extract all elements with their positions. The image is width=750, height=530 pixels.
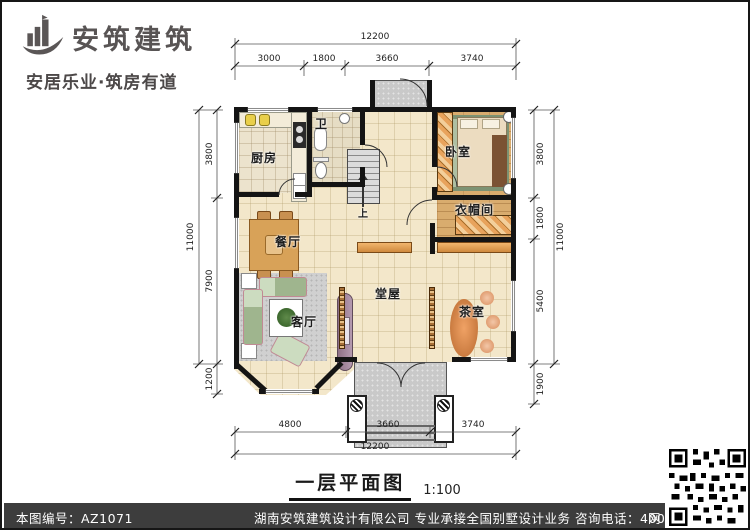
room-label-bath: 卫 [315, 115, 328, 132]
porch-step [367, 432, 435, 434]
sink-bowl [259, 114, 270, 126]
plan-title: 一层平面图 [289, 468, 411, 501]
brand-name: 安筑建筑 [72, 18, 196, 57]
stair-up-label: 上 [358, 205, 369, 220]
wall [360, 167, 365, 187]
room-label-kitchen: 厨房 [251, 149, 277, 166]
dim-label: 3740 [450, 54, 494, 64]
drawing-sheet: 安筑建筑 安居乐业·筑房有道 安筑建筑 安筑建筑 安筑建筑 [0, 0, 750, 530]
sofa [243, 289, 263, 345]
dim-label: 1800 [302, 54, 346, 64]
window [247, 107, 289, 112]
hall-cabinet [437, 242, 512, 253]
bay-window [265, 389, 313, 394]
dim-label: 4800 [268, 420, 312, 430]
cloak-wardrobe [455, 215, 512, 235]
screen-partition [339, 287, 345, 349]
dim-label: 1200 [205, 357, 215, 401]
burner-icon [296, 136, 303, 143]
sink-bowl [245, 114, 256, 126]
room-label-dining: 餐厅 [275, 233, 301, 250]
window [470, 357, 508, 362]
fridge-divider [293, 185, 306, 186]
web-label: 网 [648, 508, 661, 527]
room-label-cloakroom: 衣帽间 [455, 201, 494, 218]
wall [432, 237, 516, 242]
dim-label: 12200 [353, 32, 397, 42]
drawing-number: 本图编号：AZ1071 [16, 508, 133, 527]
toilet-icon [315, 162, 327, 179]
side-table [241, 273, 257, 289]
window [234, 122, 239, 174]
room-label-tea: 茶室 [459, 303, 485, 320]
screen-partition [429, 287, 435, 349]
footer-bar: 本图编号：AZ1071 湖南安筑建筑设计有限公司 专业承接全国别墅设计业务 咨询… [4, 503, 746, 528]
dim-label: 3000 [247, 54, 291, 64]
round-sink-icon [339, 113, 350, 124]
dim-label: 1800 [536, 196, 546, 240]
column-icon [350, 399, 363, 412]
burner-icon [296, 126, 303, 133]
room-label-hall: 堂屋 [375, 285, 401, 302]
dim-label: 7900 [205, 259, 215, 303]
dim-label: 5400 [536, 279, 546, 323]
room-label-bedroom: 卧室 [445, 143, 471, 160]
company-info: 湖南安筑建筑设计有限公司 专业承接全国别墅设计业务 咨询电话：400-8070-… [254, 508, 735, 527]
pillow [460, 119, 478, 129]
rear-porch-wall [370, 80, 375, 107]
dim-label: 1900 [536, 362, 546, 406]
bed-throw [492, 135, 507, 187]
porch-step [367, 439, 435, 441]
stool [480, 339, 494, 353]
sofa [259, 277, 307, 297]
pillow [482, 119, 500, 129]
qr-code [665, 445, 750, 530]
side-table [241, 343, 257, 359]
column-icon [437, 399, 450, 412]
wall [234, 192, 279, 197]
wall [360, 107, 365, 145]
dim-label: 11000 [186, 215, 196, 259]
qr-code-icon [669, 449, 746, 526]
wall [295, 192, 312, 197]
dim-label: 12200 [353, 442, 397, 452]
floor-plan: 厨房 卫 卧室 衣帽间 餐厅 堂屋 客厅 茶室 上 [187, 27, 572, 457]
dim-label: 3660 [366, 420, 410, 430]
stool [486, 315, 500, 329]
window [317, 107, 353, 112]
dim-label: 3800 [205, 132, 215, 176]
rear-porch-wall [427, 80, 432, 107]
window [511, 280, 516, 332]
wall [432, 107, 437, 167]
window [511, 117, 516, 179]
wall [437, 195, 516, 200]
plan-scale: 1:100 [423, 483, 460, 501]
wall [312, 182, 360, 187]
dim-label: 3800 [536, 132, 546, 176]
room-label-living: 客厅 [291, 313, 317, 330]
dim-label: 11000 [556, 215, 566, 259]
rear-porch [370, 80, 432, 109]
brand-logo-icon [20, 14, 66, 60]
hall-cabinet [357, 242, 412, 253]
dim-label: 3740 [451, 420, 495, 430]
dim-label: 3660 [365, 54, 409, 64]
window [234, 217, 239, 269]
caption: 一层平面图 1:100 [2, 468, 748, 501]
